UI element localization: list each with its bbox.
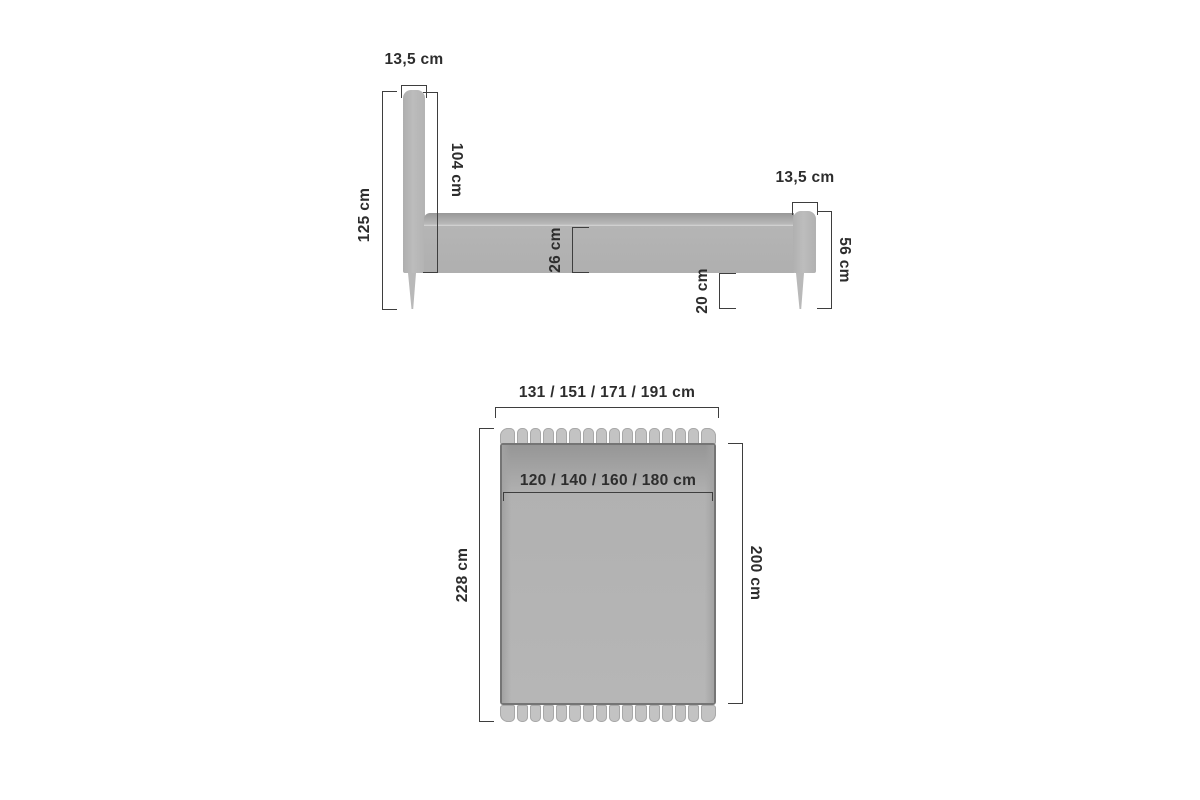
- mattress-edge: [424, 213, 794, 226]
- front-leg: [407, 273, 417, 309]
- dim-bracket-overall-width: [495, 407, 719, 418]
- side-rail-left: [502, 445, 511, 703]
- tufting-bar: [649, 705, 660, 722]
- bed-dimension-diagram: 13,5 cm 125 cm 104 cm 26 cm 20 cm 13,5 c…: [0, 0, 1200, 800]
- dim-bracket-headboard-height: [382, 91, 397, 310]
- footboard-side: [793, 211, 816, 273]
- dim-label-headboard-thickness: 13,5 cm: [384, 51, 443, 69]
- rear-leg: [795, 273, 805, 309]
- tufting-bar: [609, 705, 620, 722]
- dim-label-overall-length: 228 cm: [454, 548, 472, 602]
- tufting-bar: [701, 705, 716, 722]
- dim-label-frame-height: 26 cm: [547, 227, 565, 273]
- bed-frame-side: [424, 226, 794, 273]
- tufting-bar: [543, 705, 554, 722]
- dim-bracket-footboard-thickness: [792, 202, 818, 215]
- tufting-bar: [517, 705, 528, 722]
- tufting-bar: [688, 705, 699, 722]
- footboard-tufting-row: [500, 705, 716, 722]
- tufting-bar: [622, 705, 633, 722]
- dim-label-footboard-height: 56 cm: [835, 237, 853, 283]
- dim-bracket-overall-length: [479, 428, 494, 722]
- tufting-bar: [675, 705, 686, 722]
- tufting-bar: [569, 705, 580, 722]
- tufting-bar: [583, 705, 594, 722]
- dim-label-overall-width: 131 / 151 / 171 / 191 cm: [519, 384, 695, 402]
- dim-bracket-headboard-above-base: [423, 92, 438, 273]
- tufting-bar: [530, 705, 541, 722]
- dim-bracket-footboard-height: [817, 211, 832, 309]
- dim-bracket-mattress-width: [503, 492, 713, 501]
- tufting-bar: [556, 705, 567, 722]
- dim-label-mattress-width: 120 / 140 / 160 / 180 cm: [520, 472, 696, 490]
- dim-label-underbed-clearance: 20 cm: [694, 268, 712, 314]
- dim-label-footboard-thickness: 13,5 cm: [775, 169, 834, 187]
- tufting-bar: [635, 705, 646, 722]
- tufting-bar: [596, 705, 607, 722]
- dim-label-headboard-above-base: 104 cm: [447, 143, 465, 197]
- dim-bracket-frame-height: [572, 227, 589, 273]
- dim-bracket-mattress-length: [728, 443, 743, 704]
- tufting-bar: [500, 705, 515, 722]
- headboard-side: [403, 90, 425, 273]
- dim-bracket-underbed-clearance: [719, 273, 736, 309]
- dim-label-mattress-length: 200 cm: [746, 546, 764, 600]
- tufting-bar: [662, 705, 673, 722]
- dim-label-headboard-height: 125 cm: [356, 188, 374, 242]
- side-rail-right: [705, 445, 714, 703]
